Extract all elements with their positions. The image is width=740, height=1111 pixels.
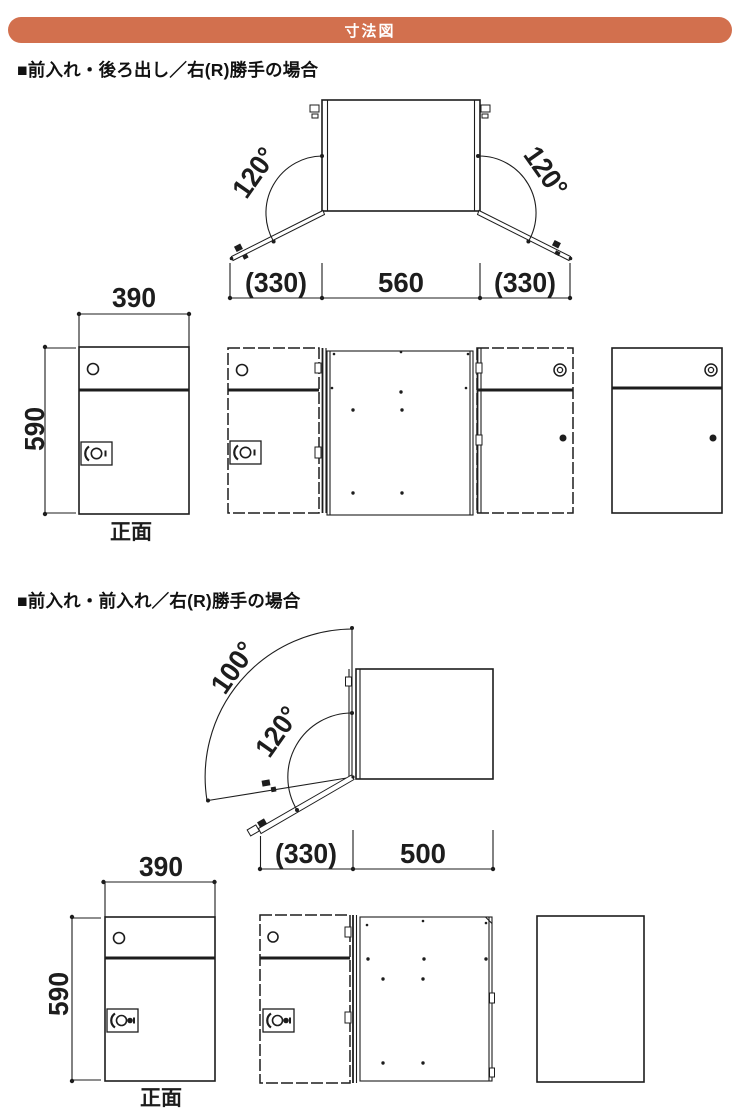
section1-open-view: [228, 348, 573, 515]
dim-590: 590: [19, 407, 50, 451]
height-dimension: 590: [19, 345, 76, 516]
section2-open-view: [260, 915, 495, 1083]
dim-390: 390: [112, 282, 156, 313]
section1-rear-view: [612, 348, 722, 513]
angle-label-right: 120°: [518, 141, 574, 203]
section2-drawing: 100° 120° (330) 500: [0, 620, 740, 1111]
lock-icon: [107, 1009, 138, 1032]
section1-heading: ■前入れ・後ろ出し／右(R)勝手の場合: [17, 57, 318, 82]
title-banner: 寸法図: [8, 17, 732, 43]
dim-330-left: (330): [245, 267, 307, 298]
dim-500: 500: [400, 838, 446, 869]
dim-560: 560: [378, 267, 424, 298]
angle-label-left: 120°: [226, 142, 282, 204]
dimension-drawing-page: 寸法図 ■前入れ・後ろ出し／右(R)勝手の場合 ■前入れ・前入れ／右(R)勝手の…: [0, 0, 740, 1111]
body-panel: [327, 351, 473, 515]
dim-590: 590: [43, 972, 74, 1016]
front-caption: 正面: [110, 521, 152, 544]
plan-dimension-line: (330) 560 (330): [228, 263, 572, 300]
width-dimension: 390: [77, 282, 191, 347]
section2-front-view: 390 590 正面: [43, 851, 217, 1110]
interior-panel: [360, 917, 495, 1081]
height-dimension: 590: [43, 915, 101, 1083]
front-caption: 正面: [140, 1087, 182, 1110]
knob-icon: [560, 435, 567, 442]
knob-icon: [710, 435, 717, 442]
dim-390: 390: [139, 851, 183, 882]
right-open-door: [478, 211, 573, 261]
plan-dimension-line: (330) 500: [258, 830, 495, 871]
section2-rear-view: [537, 916, 644, 1082]
page-title: 寸法図: [344, 20, 395, 41]
dim-330-right: (330): [494, 267, 556, 298]
left-open-door: [230, 211, 325, 261]
section2-plan-view: 100° 120° (330) 500: [204, 626, 495, 871]
section1-plan-view: 120° 120° (330) 560 (330): [226, 100, 574, 300]
section1-drawing: 120° 120° (330) 560 (330): [0, 85, 740, 555]
dim-330: (330): [275, 838, 337, 869]
lock-icon: [81, 442, 112, 465]
section2-heading: ■前入れ・前入れ／右(R)勝手の場合: [17, 588, 300, 613]
lock-icon: [230, 441, 261, 464]
angle-label-inner: 120°: [249, 701, 305, 763]
width-dimension: 390: [101, 851, 216, 917]
hinge-icon: [346, 677, 352, 686]
lock-icon: [263, 1009, 294, 1032]
section1-front-view: 390 590 正面: [19, 282, 191, 544]
